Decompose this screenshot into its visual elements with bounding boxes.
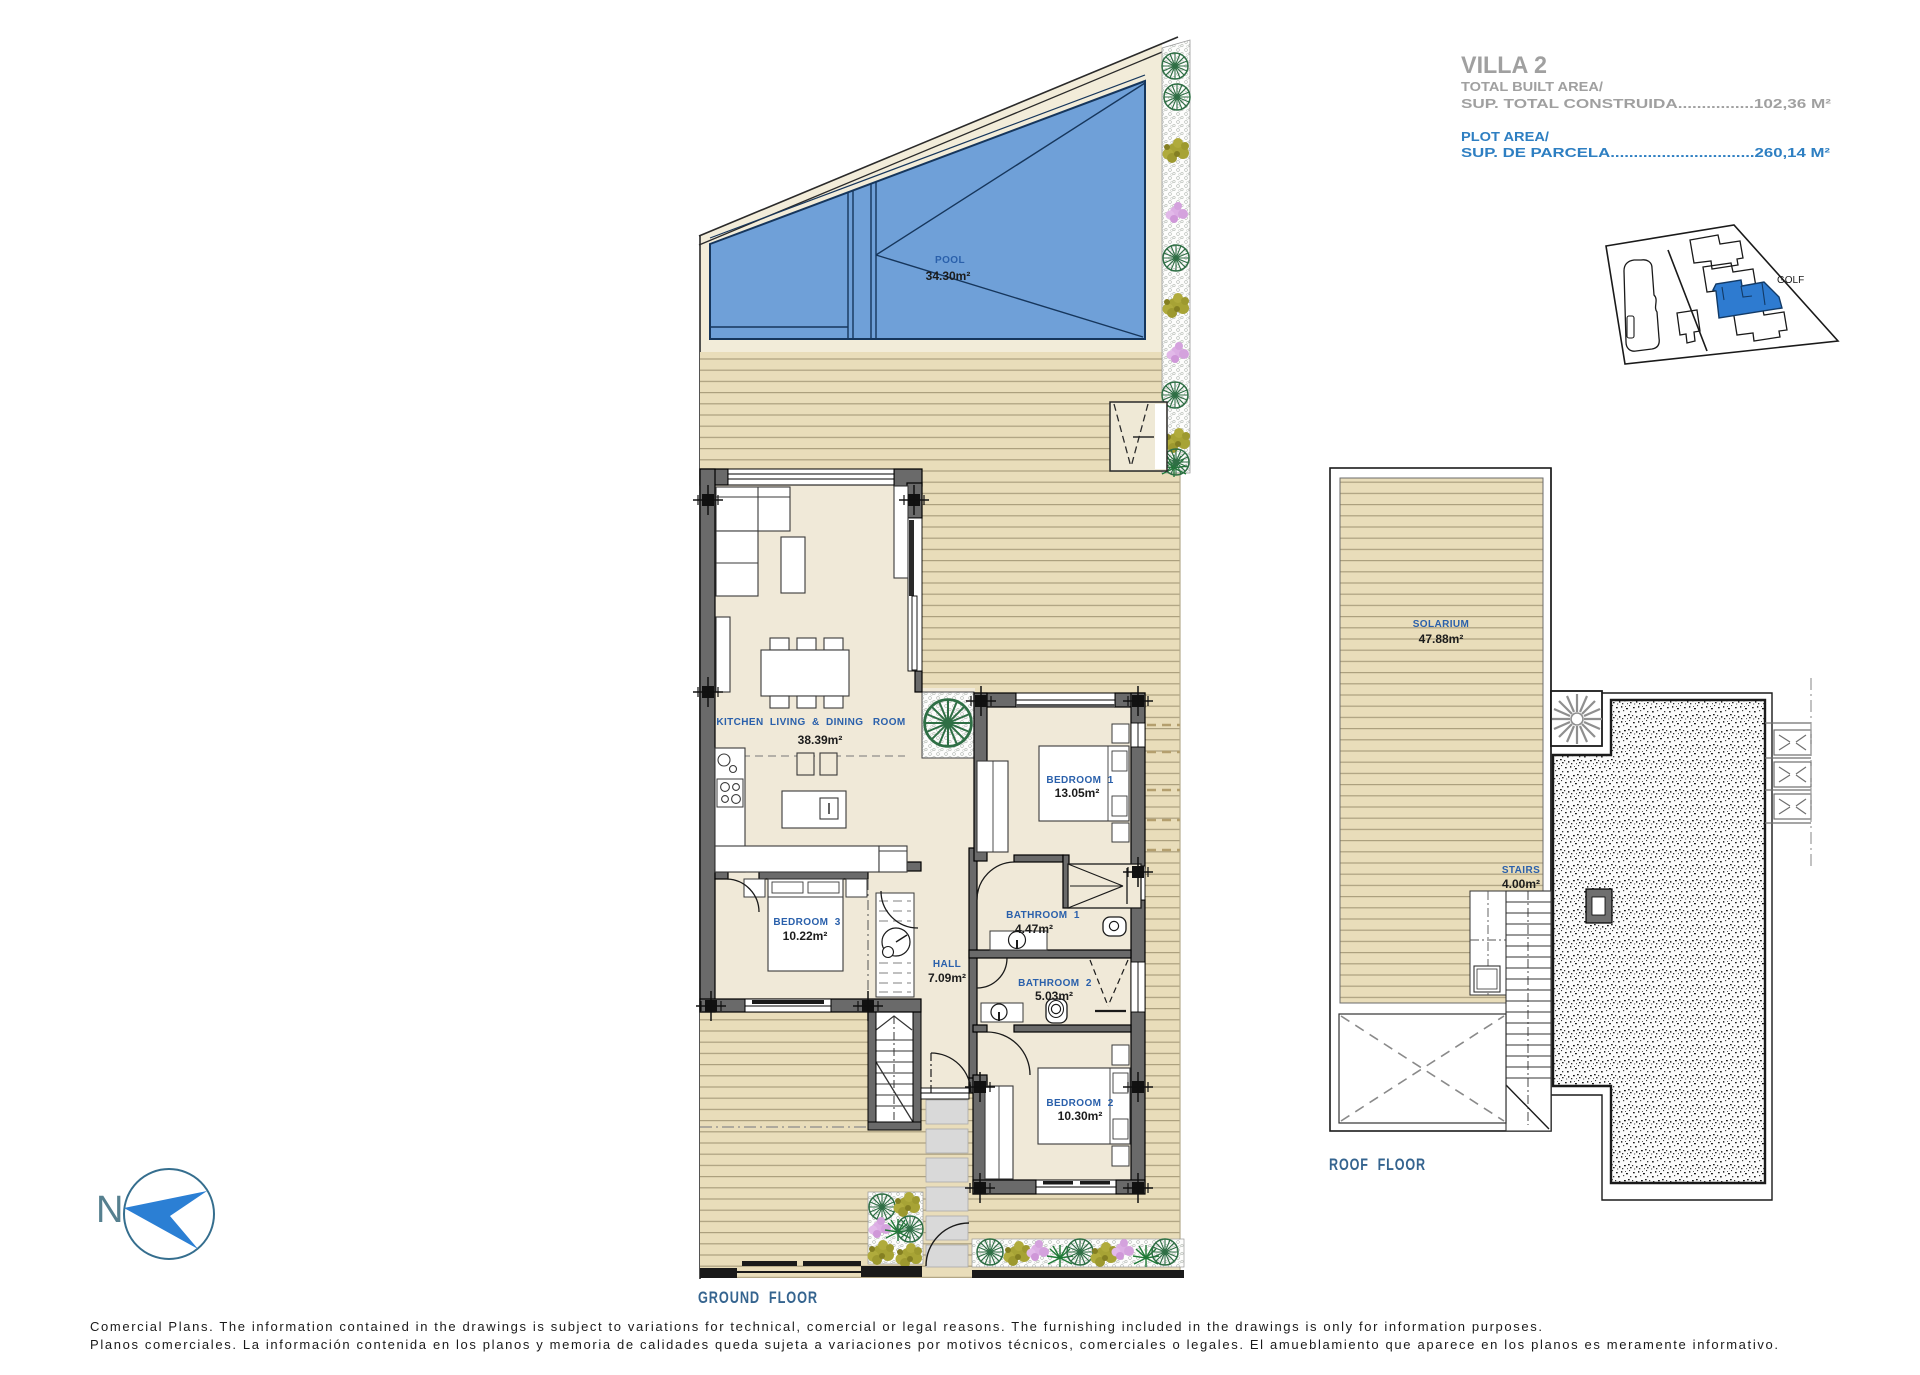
svg-text:Comercial Plans. The informati: Comercial Plans. The information contain… — [90, 1319, 1542, 1334]
svg-text:SUP. DE PARCELA...............: SUP. DE PARCELA.........................… — [1461, 145, 1831, 160]
svg-text:10.30m²: 10.30m² — [1058, 1109, 1103, 1123]
svg-text:BEDROOM 1: BEDROOM 1 — [1046, 775, 1113, 786]
svg-text:13.05m²: 13.05m² — [1055, 786, 1100, 800]
svg-text:BATHROOM 1: BATHROOM 1 — [1006, 910, 1080, 921]
svg-text:38.39m²: 38.39m² — [798, 733, 843, 747]
svg-text:ROOF FLOOR: ROOF FLOOR — [1329, 1155, 1426, 1174]
svg-text:BEDROOM 3: BEDROOM 3 — [773, 917, 840, 928]
svg-text:BEDROOM 2: BEDROOM 2 — [1046, 1098, 1113, 1109]
svg-text:PLOT AREA/: PLOT AREA/ — [1461, 129, 1549, 144]
svg-text:BATHROOM 2: BATHROOM 2 — [1018, 978, 1092, 989]
svg-text:5.03m²: 5.03m² — [1035, 989, 1073, 1003]
svg-text:VILLA 2: VILLA 2 — [1461, 52, 1547, 79]
svg-text:KITCHEN LIVING & DINING R: KITCHEN LIVING & DINING ROOM — [716, 717, 905, 728]
svg-text:TOTAL BUILT AREA/: TOTAL BUILT AREA/ — [1461, 79, 1603, 94]
svg-text:34.30m²: 34.30m² — [926, 269, 971, 283]
svg-text:10.22m²: 10.22m² — [783, 929, 828, 943]
svg-text:HALL: HALL — [933, 959, 961, 970]
svg-text:7.09m²: 7.09m² — [928, 971, 966, 985]
svg-text:POOL: POOL — [935, 255, 965, 266]
svg-text:SOLARIUM: SOLARIUM — [1413, 619, 1470, 630]
svg-text:STAIRS: STAIRS — [1502, 865, 1540, 876]
svg-text:4.47m²: 4.47m² — [1015, 922, 1053, 936]
svg-text:GOLF: GOLF — [1777, 275, 1804, 286]
svg-text:47.88m²: 47.88m² — [1419, 632, 1464, 646]
svg-text:SUP. TOTAL CONSTRUIDA.........: SUP. TOTAL CONSTRUIDA................102… — [1461, 96, 1832, 111]
svg-text:GROUND FLOOR: GROUND FLOOR — [698, 1288, 818, 1307]
svg-text:N: N — [96, 1189, 123, 1231]
svg-text:4.00m²: 4.00m² — [1502, 877, 1540, 891]
